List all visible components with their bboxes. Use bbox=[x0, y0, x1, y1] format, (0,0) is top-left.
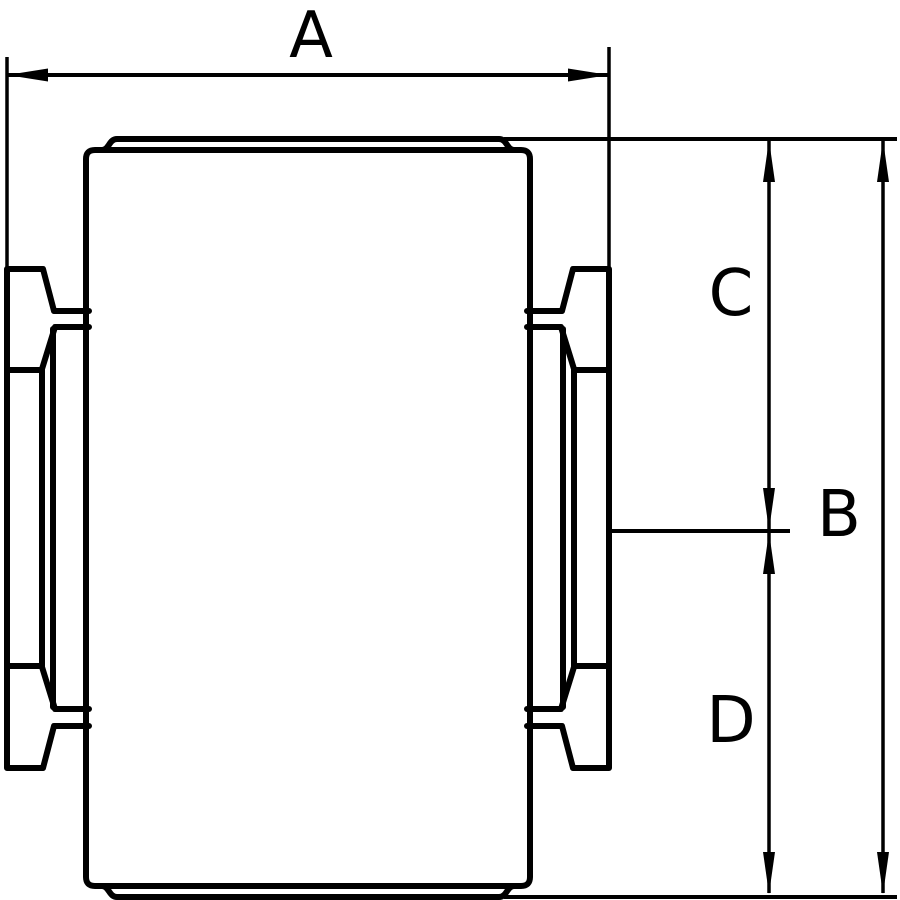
dimension-d bbox=[763, 532, 775, 894]
arrowhead-overall-top bbox=[877, 140, 889, 182]
dimension-label-d: D bbox=[706, 684, 755, 758]
arrowhead-a-right bbox=[568, 69, 609, 82]
left-hub-groove-top bbox=[42, 327, 89, 369]
roller-body-outline bbox=[86, 150, 530, 886]
right-hub-sleeve bbox=[574, 370, 609, 666]
dimension-label-b: B bbox=[817, 478, 861, 552]
arrowhead-d-top bbox=[763, 532, 775, 574]
drawing-svg: A C B D bbox=[0, 0, 900, 900]
right-hub-groove-bottom bbox=[527, 667, 574, 709]
arrowhead-c-bottom bbox=[763, 488, 775, 530]
dimension-label-a: A bbox=[289, 0, 333, 73]
left-hub-groove-bottom bbox=[42, 667, 89, 709]
technical-drawing: A C B D bbox=[0, 0, 900, 900]
part-outline bbox=[7, 139, 609, 897]
arrowhead-c-top bbox=[763, 140, 775, 182]
arrowhead-d-bottom bbox=[763, 852, 775, 894]
dimension-overall-height bbox=[877, 140, 889, 894]
left-hub-sleeve bbox=[7, 370, 42, 666]
arrowhead-a-left bbox=[7, 69, 48, 82]
dimension-c bbox=[763, 140, 775, 530]
dimension-label-c: C bbox=[709, 257, 754, 331]
arrowhead-overall-bottom bbox=[877, 852, 889, 894]
right-hub-groove-top bbox=[527, 327, 574, 369]
